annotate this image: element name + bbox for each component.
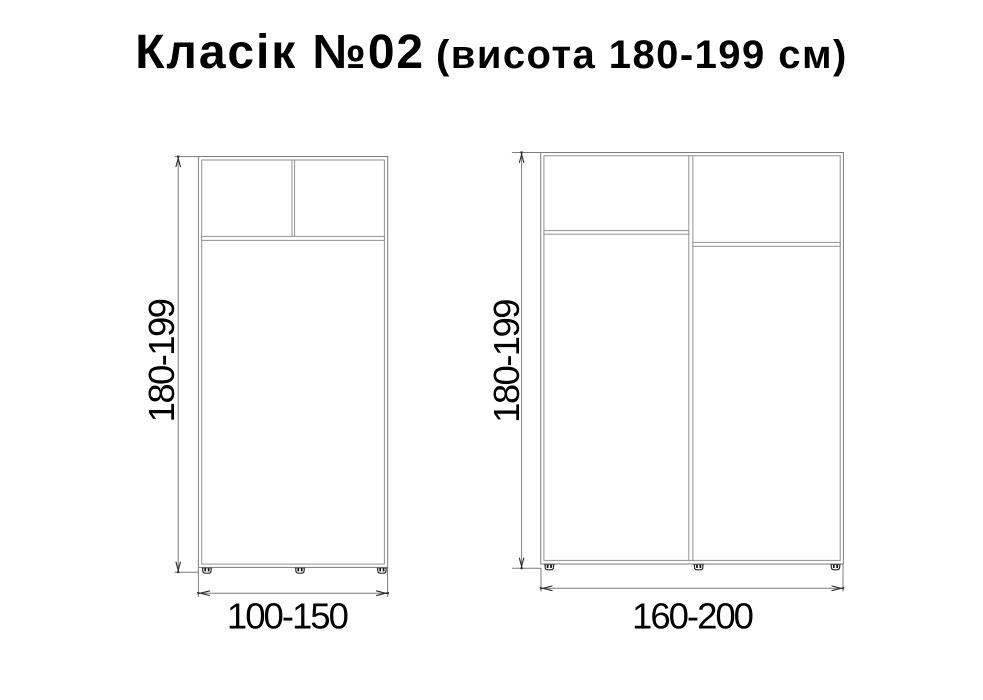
svg-text:Класік №02(висота 180-199 см): Класік №02(висота 180-199 см) — [135, 26, 848, 79]
svg-text:160-200: 160-200 — [632, 595, 753, 636]
svg-text:180-199: 180-199 — [486, 300, 527, 423]
svg-text:100-150: 100-150 — [227, 595, 348, 636]
svg-text:180-199: 180-199 — [141, 299, 182, 422]
